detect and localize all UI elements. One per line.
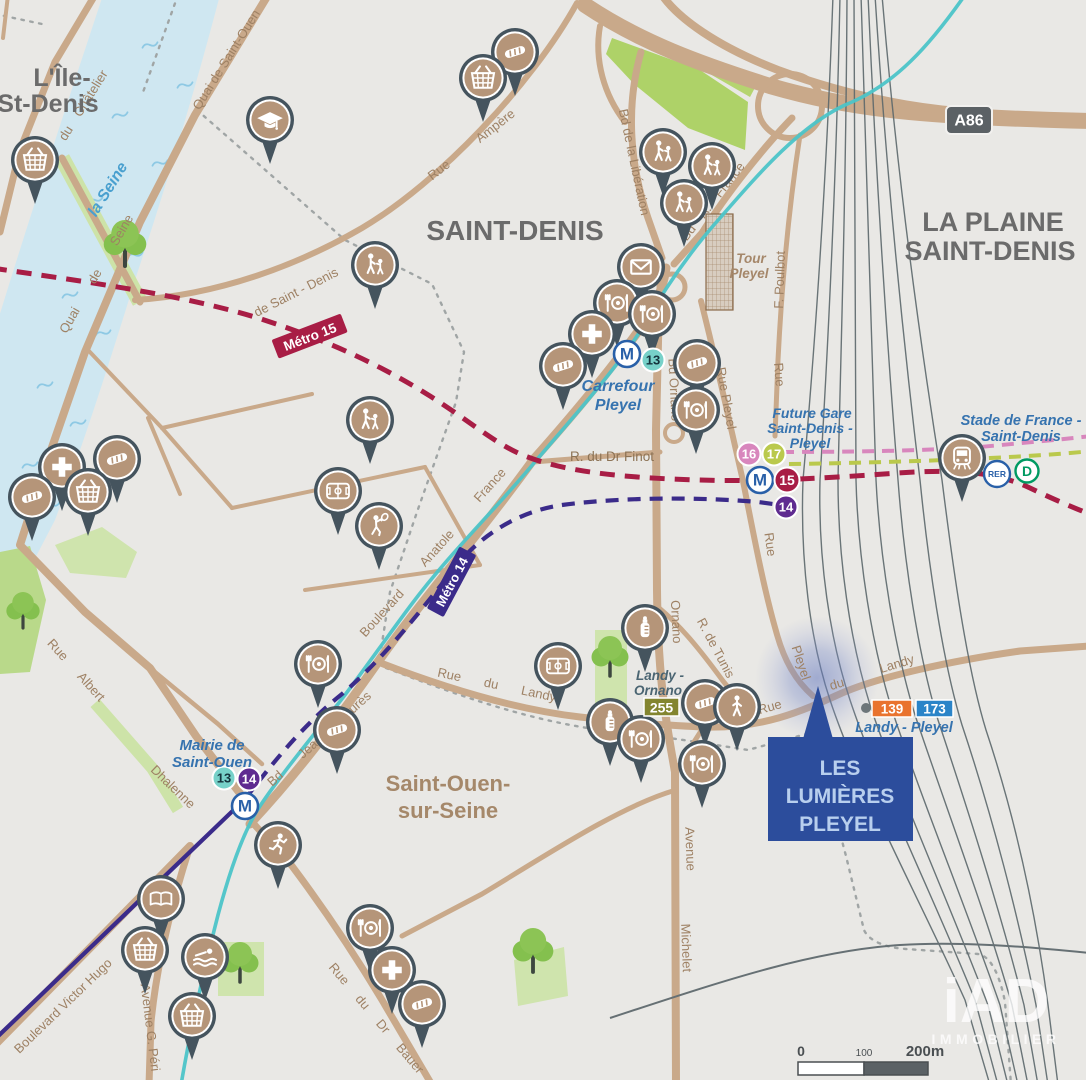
label-ile-1: L'Île- — [33, 62, 90, 92]
future-gare-1: Future Gare — [772, 405, 852, 421]
street-f-poulbot: F. Poulbot — [771, 250, 788, 309]
map-canvas: Métro 15 Métro 14 Quai du Châtelier Quai… — [0, 0, 1086, 1080]
mairie-label-1: Mairie de — [179, 737, 244, 754]
bus-stop-dot — [861, 703, 871, 713]
rer-d-badge: D — [1022, 463, 1032, 479]
street-rue-poulbot: Rue — [771, 362, 788, 387]
line-16-badge: 16 — [742, 447, 756, 462]
landy-pleyel-label: Landy - Pleyel — [855, 720, 953, 736]
carrefour-pleyel-1: Carrefour — [582, 378, 656, 395]
label-saint-ouen-2: sur-Seine — [398, 798, 498, 823]
tour-pleyel-line2: Pleyel — [729, 266, 768, 281]
stade-label-2: Saint-Denis — [981, 429, 1061, 445]
line-15-badge: 15 — [779, 472, 795, 488]
label-ile-2: St-Denis — [0, 90, 99, 118]
project-line2: LUMIÈRES — [786, 785, 895, 808]
line-17-badge: 17 — [767, 447, 781, 462]
metro-m-badge: M — [753, 471, 767, 490]
line-13-badge: 13 — [217, 771, 231, 786]
rer-badge: RER — [988, 469, 1006, 479]
label-saint-ouen-1: Saint-Ouen- — [386, 771, 511, 796]
metro-m-badge: M — [620, 345, 634, 364]
landy-ornano-2: Ornano — [634, 683, 682, 698]
street-finot: R. du Dr Finot — [570, 449, 654, 464]
street-avenue: Avenue — [682, 827, 699, 871]
bus-255-badge: 255 — [650, 700, 674, 716]
line-14-badge: 14 — [779, 500, 794, 515]
line-13-badge: 13 — [646, 353, 660, 368]
street-ornano: Ornano — [668, 600, 685, 644]
carrefour-pleyel-2: Pleyel — [595, 397, 642, 414]
scale-zero: 0 — [797, 1043, 805, 1059]
brand-logo-sub: IMMOBILIER — [932, 1031, 1061, 1047]
a86-badge: A86 — [946, 106, 992, 134]
stade-label-1: Stade de France - — [961, 413, 1082, 429]
project-line1: LES — [820, 757, 861, 780]
mairie-label-2: Saint-Ouen — [172, 754, 252, 771]
future-gare-2: Saint-Denis - — [767, 420, 853, 436]
a86-label: A86 — [954, 113, 983, 130]
tour-pleyel-line1: Tour — [736, 251, 766, 266]
line-14-badge: 14 — [242, 772, 257, 787]
tour-pleyel-label: Tour Pleyel — [729, 251, 768, 281]
scale-mid: 100 — [856, 1048, 873, 1059]
label-la-plaine-1: LA PLAINE — [922, 207, 1064, 237]
label-la-plaine-2: SAINT-DENIS — [904, 236, 1075, 266]
project-line3: PLEYEL — [799, 813, 881, 836]
landy-ornano-1: Landy - — [636, 668, 685, 683]
metro-m-badge: M — [238, 797, 252, 816]
future-gare-3: Pleyel — [790, 435, 832, 451]
brand-logo: iAD IMMOBILIER — [932, 967, 1061, 1047]
bus-139-badge: 139 — [881, 702, 904, 717]
brand-logo-text: iAD — [943, 967, 1050, 1036]
bus-173-badge: 173 — [923, 702, 946, 717]
label-saint-denis: SAINT-DENIS — [426, 215, 603, 246]
street-michelet: Michelet — [678, 923, 695, 972]
